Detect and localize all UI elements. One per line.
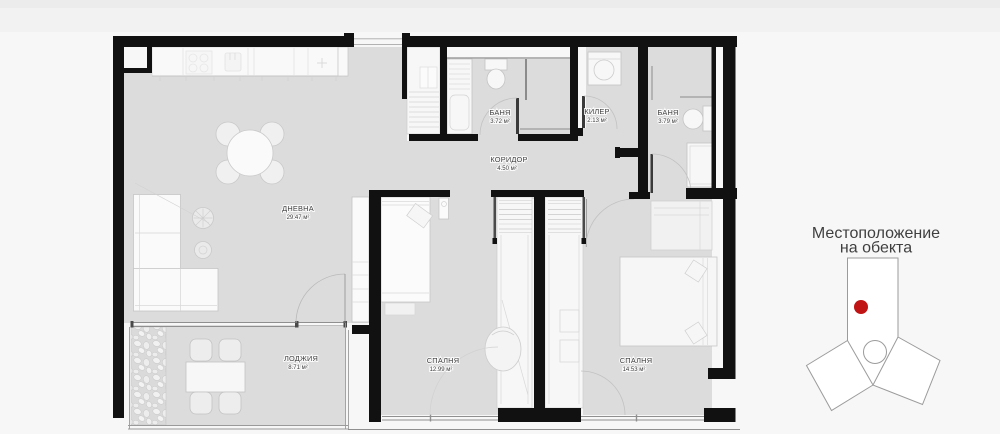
svg-text:8.71 м²: 8.71 м²: [288, 365, 307, 371]
svg-text:БАНЯ: БАНЯ: [657, 108, 678, 117]
svg-text:29.47 м²: 29.47 м²: [287, 215, 310, 221]
svg-text:БАНЯ: БАНЯ: [489, 108, 510, 117]
svg-text:КОРИДОР: КОРИДОР: [490, 155, 527, 164]
svg-text:ЛОДЖИЯ: ЛОДЖИЯ: [284, 354, 318, 363]
svg-text:2.13 м²: 2.13 м²: [587, 118, 606, 124]
svg-text:КИЛЕР: КИЛЕР: [584, 107, 609, 116]
svg-text:СПАЛНЯ: СПАЛНЯ: [427, 356, 459, 365]
svg-text:3.79 м²: 3.79 м²: [658, 119, 677, 125]
svg-text:3.72 м²: 3.72 м²: [490, 119, 509, 125]
svg-text:ДНЕВНА: ДНЕВНА: [282, 204, 314, 213]
svg-text:СПАЛНЯ: СПАЛНЯ: [620, 356, 652, 365]
svg-text:на обекта: на обекта: [840, 240, 912, 257]
svg-text:4.50 м²: 4.50 м²: [497, 166, 516, 172]
svg-text:12.99 м²: 12.99 м²: [430, 367, 453, 373]
svg-text:14.53 м²: 14.53 м²: [623, 367, 646, 373]
